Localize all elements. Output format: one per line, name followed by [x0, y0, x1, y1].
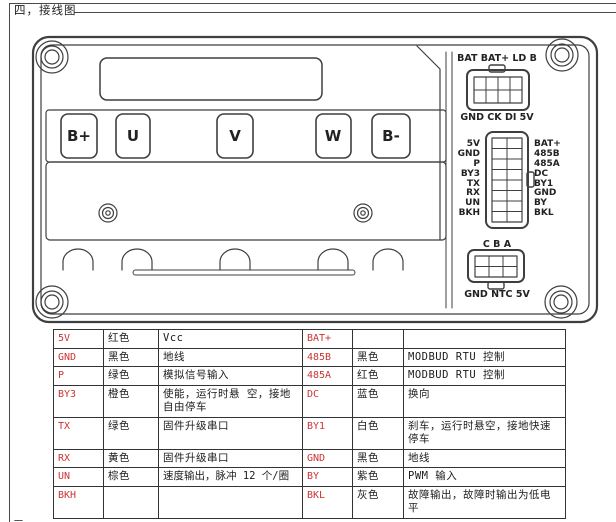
terminal-u-label: U — [127, 127, 139, 145]
mid-pin-left-gnd: GND — [458, 149, 480, 159]
function-cell: 速度输出，脉冲 12 个/圈 — [159, 468, 303, 487]
mid-pin-right-485b: 485B — [534, 149, 560, 159]
function-cell: PWM 输入 — [404, 468, 566, 487]
pin-cell: 5V — [54, 330, 104, 349]
mid-pin-right-485a: 485A — [534, 159, 560, 169]
table-row: TX 绿色 固件升级串口 BY1 白色 刹车，运行时悬空，接地快速停车 — [54, 417, 566, 449]
color-cell: 灰色 — [353, 486, 404, 518]
color-cell: 绿色 — [104, 417, 159, 449]
function-cell — [159, 486, 303, 518]
pin-cell: BY — [303, 468, 353, 487]
table-row: BKH BKL 灰色 故障输出，故障时输出为低电平 — [54, 486, 566, 518]
color-cell: 红色 — [104, 330, 159, 349]
color-cell: 紫色 — [353, 468, 404, 487]
color-cell: 黑色 — [104, 348, 159, 367]
pin-cell: BY3 — [54, 385, 104, 417]
pin-cell: UN — [54, 468, 104, 487]
function-cell: MODBUD RTU 控制 — [404, 367, 566, 386]
function-cell — [404, 330, 566, 349]
pin-cell: P — [54, 367, 104, 386]
terminal-w-label: W — [325, 127, 342, 145]
color-cell: 红色 — [353, 367, 404, 386]
mid-pin-left-p: P — [473, 159, 480, 169]
function-cell: MODBUD RTU 控制 — [404, 348, 566, 367]
mid-pin-left-rx: RX — [466, 188, 480, 198]
function-cell: 地线 — [404, 449, 566, 468]
function-cell: Vcc — [159, 330, 303, 349]
mid-pin-left-5v: 5V — [467, 139, 480, 149]
color-cell: 绿色 — [104, 367, 159, 386]
pin-cell: BKL — [303, 486, 353, 518]
connector-bottom-upper-label: C B A — [483, 239, 512, 250]
connector-top-upper-label: BAT BAT+ LD B — [457, 53, 537, 64]
function-cell: 地线 — [159, 348, 303, 367]
pin-cell: BKH — [54, 486, 104, 518]
connector-bottom-lower-label: GND NTC 5V — [464, 289, 530, 300]
pin-cell: BAT+ — [303, 330, 353, 349]
connector-top-lower-label: GND CK DI 5V — [460, 112, 534, 123]
mid-pin-left-bkh: BKH — [459, 208, 480, 218]
terminal-v-label: V — [229, 127, 241, 145]
pin-definition-table: 5V 红色 Vcc BAT+ GND 黑色 地线 485B 黑色 MODBUD … — [53, 329, 566, 519]
controller-wiring-diagram: B+ U V W B- BAT BAT+ LD B GND CK DI 5V 5… — [0, 0, 616, 330]
function-cell: 固件升级串口 — [159, 417, 303, 449]
pin-cell: RX — [54, 449, 104, 468]
color-cell: 黄色 — [104, 449, 159, 468]
pin-cell: BY1 — [303, 417, 353, 449]
function-cell: 使能，运行时悬 空，接地自由停车 — [159, 385, 303, 417]
color-cell: 棕色 — [104, 468, 159, 487]
pin-cell: TX — [54, 417, 104, 449]
table-row: BY3 橙色 使能，运行时悬 空，接地自由停车 DC 蓝色 换向 — [54, 385, 566, 417]
table-row: GND 黑色 地线 485B 黑色 MODBUD RTU 控制 — [54, 348, 566, 367]
pin-cell: GND — [54, 348, 104, 367]
mid-pin-right-by: BY — [534, 198, 547, 208]
table-row: 5V 红色 Vcc BAT+ — [54, 330, 566, 349]
color-cell — [353, 330, 404, 349]
table-row: P 绿色 模拟信号输入 485A 红色 MODBUD RTU 控制 — [54, 367, 566, 386]
mid-pin-right-bkl: BKL — [534, 208, 554, 218]
table-row: RX 黄色 固件升级串口 GND 黑色 地线 — [54, 449, 566, 468]
pin-cell: DC — [303, 385, 353, 417]
function-cell: 固件升级串口 — [159, 449, 303, 468]
terminal-b-minus-label: B- — [382, 127, 400, 145]
function-cell: 换向 — [404, 385, 566, 417]
mid-pin-right-bat: BAT+ — [534, 139, 561, 149]
mid-pin-right-gnd: GND — [534, 188, 556, 198]
function-cell: 模拟信号输入 — [159, 367, 303, 386]
next-section-heading-clipped: 五， — [13, 516, 163, 521]
color-cell: 蓝色 — [353, 385, 404, 417]
color-cell: 白色 — [353, 417, 404, 449]
mid-pin-left-un: UN — [465, 198, 480, 208]
terminal-b-plus-label: B+ — [67, 127, 91, 145]
mid-pin-left-by3: BY3 — [461, 169, 480, 179]
mid-pin-right-dc: DC — [534, 169, 548, 179]
color-cell — [104, 486, 159, 518]
function-cell: 刹车，运行时悬空，接地快速停车 — [404, 417, 566, 449]
pin-cell: 485A — [303, 367, 353, 386]
pin-cell: 485B — [303, 348, 353, 367]
color-cell: 橙色 — [104, 385, 159, 417]
color-cell: 黑色 — [353, 449, 404, 468]
color-cell: 黑色 — [353, 348, 404, 367]
table-row: UN 棕色 速度输出，脉冲 12 个/圈 BY 紫色 PWM 输入 — [54, 468, 566, 487]
pin-cell: GND — [303, 449, 353, 468]
function-cell: 故障输出，故障时输出为低电平 — [404, 486, 566, 518]
